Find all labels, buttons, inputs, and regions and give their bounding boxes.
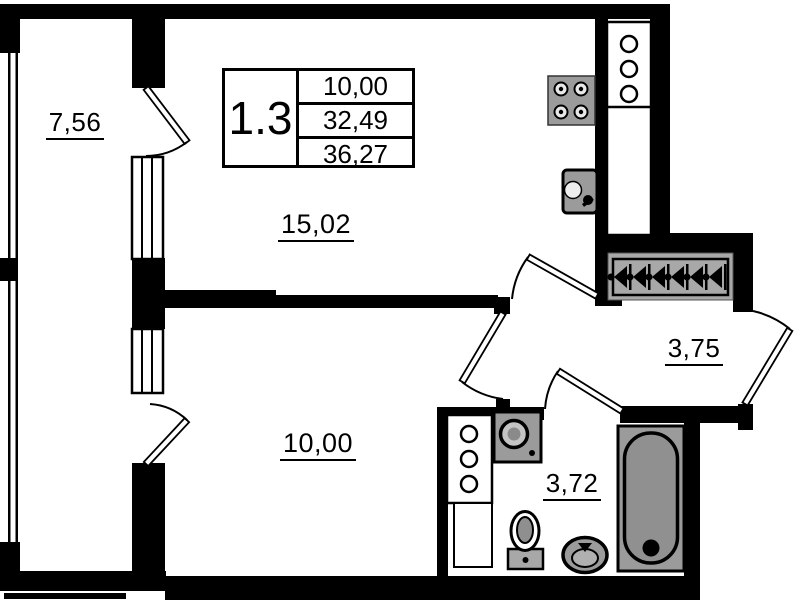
wall-balcony-bottom-line [4,593,126,599]
balcony-area-label: 7,56 [36,109,114,140]
kitchen-sink-icon [563,170,597,213]
door-living-balcony [144,86,190,156]
wall-wardrobe-right [733,253,753,312]
balcony-glazing [8,53,18,542]
bathroom-area-label: 3,72 [532,470,612,501]
hallway-area-label: 3,75 [652,335,736,366]
unit-number: 1.3 [225,71,299,165]
wall-living-bedroom-left [160,290,276,308]
toilet-icon [508,512,543,570]
door-entry [742,311,792,406]
door-bathroom [545,369,624,414]
unit-areas: 10,00 32,49 36,27 [299,71,412,165]
ventilation-shaft-kitchen [607,22,651,235]
unit-total-area: 36,27 [299,136,412,170]
bathroom-sink-icon [563,538,607,573]
living-area-label: 15,02 [266,210,366,242]
wardrobe-hangers [608,253,734,300]
floor-plan: 7,56 15,02 10,00 3,75 3,72 1.3 10,00 32,… [0,0,799,600]
door-bedroom [460,311,506,399]
wall-left-pier [0,258,18,281]
unit-living-area: 10,00 [299,71,412,102]
bedroom-area-label: 10,00 [268,429,368,461]
wall-top [0,4,670,19]
washing-machine-icon [494,412,541,462]
wall-balcony-divider-top [132,19,165,88]
wall-bathroom-jamb-stub [496,399,510,408]
window-bedroom-balcony [132,329,163,393]
wall-left-top-block [0,4,20,53]
door-bedroom-balcony [144,404,189,466]
door-living-hall [512,254,598,299]
ventilation-shaft-bathroom [447,415,492,567]
wall-entry-stub [738,404,753,430]
wall-balcony-divider-bottom [132,463,165,574]
unit-title-block: 1.3 10,00 32,49 36,27 [222,68,415,168]
wall-bottom [165,576,700,600]
wall-bathroom-right [684,420,700,578]
bathtub-icon [618,426,684,571]
wall-living-bedroom-right [270,295,498,308]
stove-icon [548,76,595,125]
wall-shaft-right [650,19,670,234]
unit-apartment-area: 32,49 [299,102,412,136]
window-living-balcony [132,157,163,259]
